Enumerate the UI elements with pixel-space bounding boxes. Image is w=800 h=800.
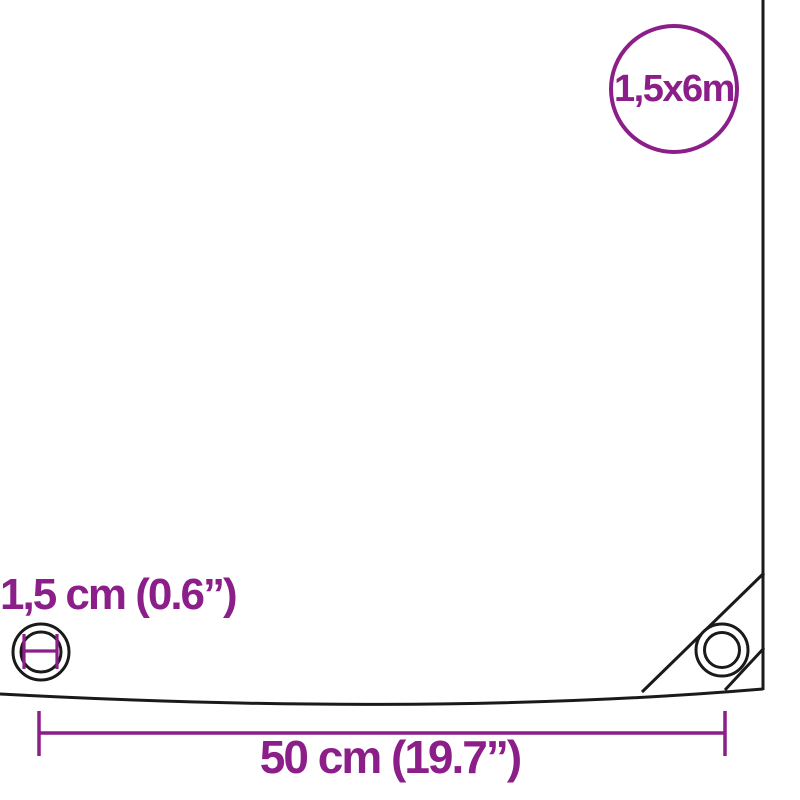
eyelet-diameter-label: 1,5 cm (0.6”) bbox=[0, 573, 236, 617]
corner-eyelet-icon bbox=[696, 624, 748, 676]
size-badge: 1,5x6m bbox=[609, 24, 739, 154]
eyelet-spacing-label: 50 cm (19.7”) bbox=[190, 734, 590, 780]
tarpaulin-dimension-diagram: 1,5x6m 1,5 cm (0.6”) 50 cm (19.7”) bbox=[0, 0, 800, 800]
sheet-bottom-edge bbox=[0, 689, 763, 704]
size-badge-label: 1,5x6m bbox=[614, 68, 734, 111]
